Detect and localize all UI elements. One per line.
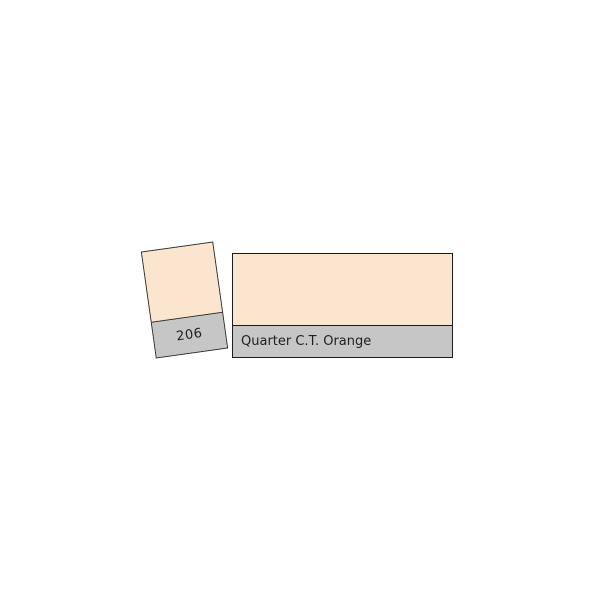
swatch-card-color-area: [142, 243, 222, 323]
filter-name-band: Quarter C.T. Orange: [233, 326, 452, 357]
filter-swatch-card[interactable]: 206: [141, 241, 228, 358]
filter-name-label: Quarter C.T. Orange: [241, 334, 371, 349]
filter-preview-panel: Quarter C.T. Orange: [232, 253, 453, 358]
gel-swatch-view: 206 Quarter C.T. Orange: [0, 0, 600, 600]
filter-color-preview: [233, 254, 452, 326]
filter-code-label: 206: [175, 326, 203, 345]
